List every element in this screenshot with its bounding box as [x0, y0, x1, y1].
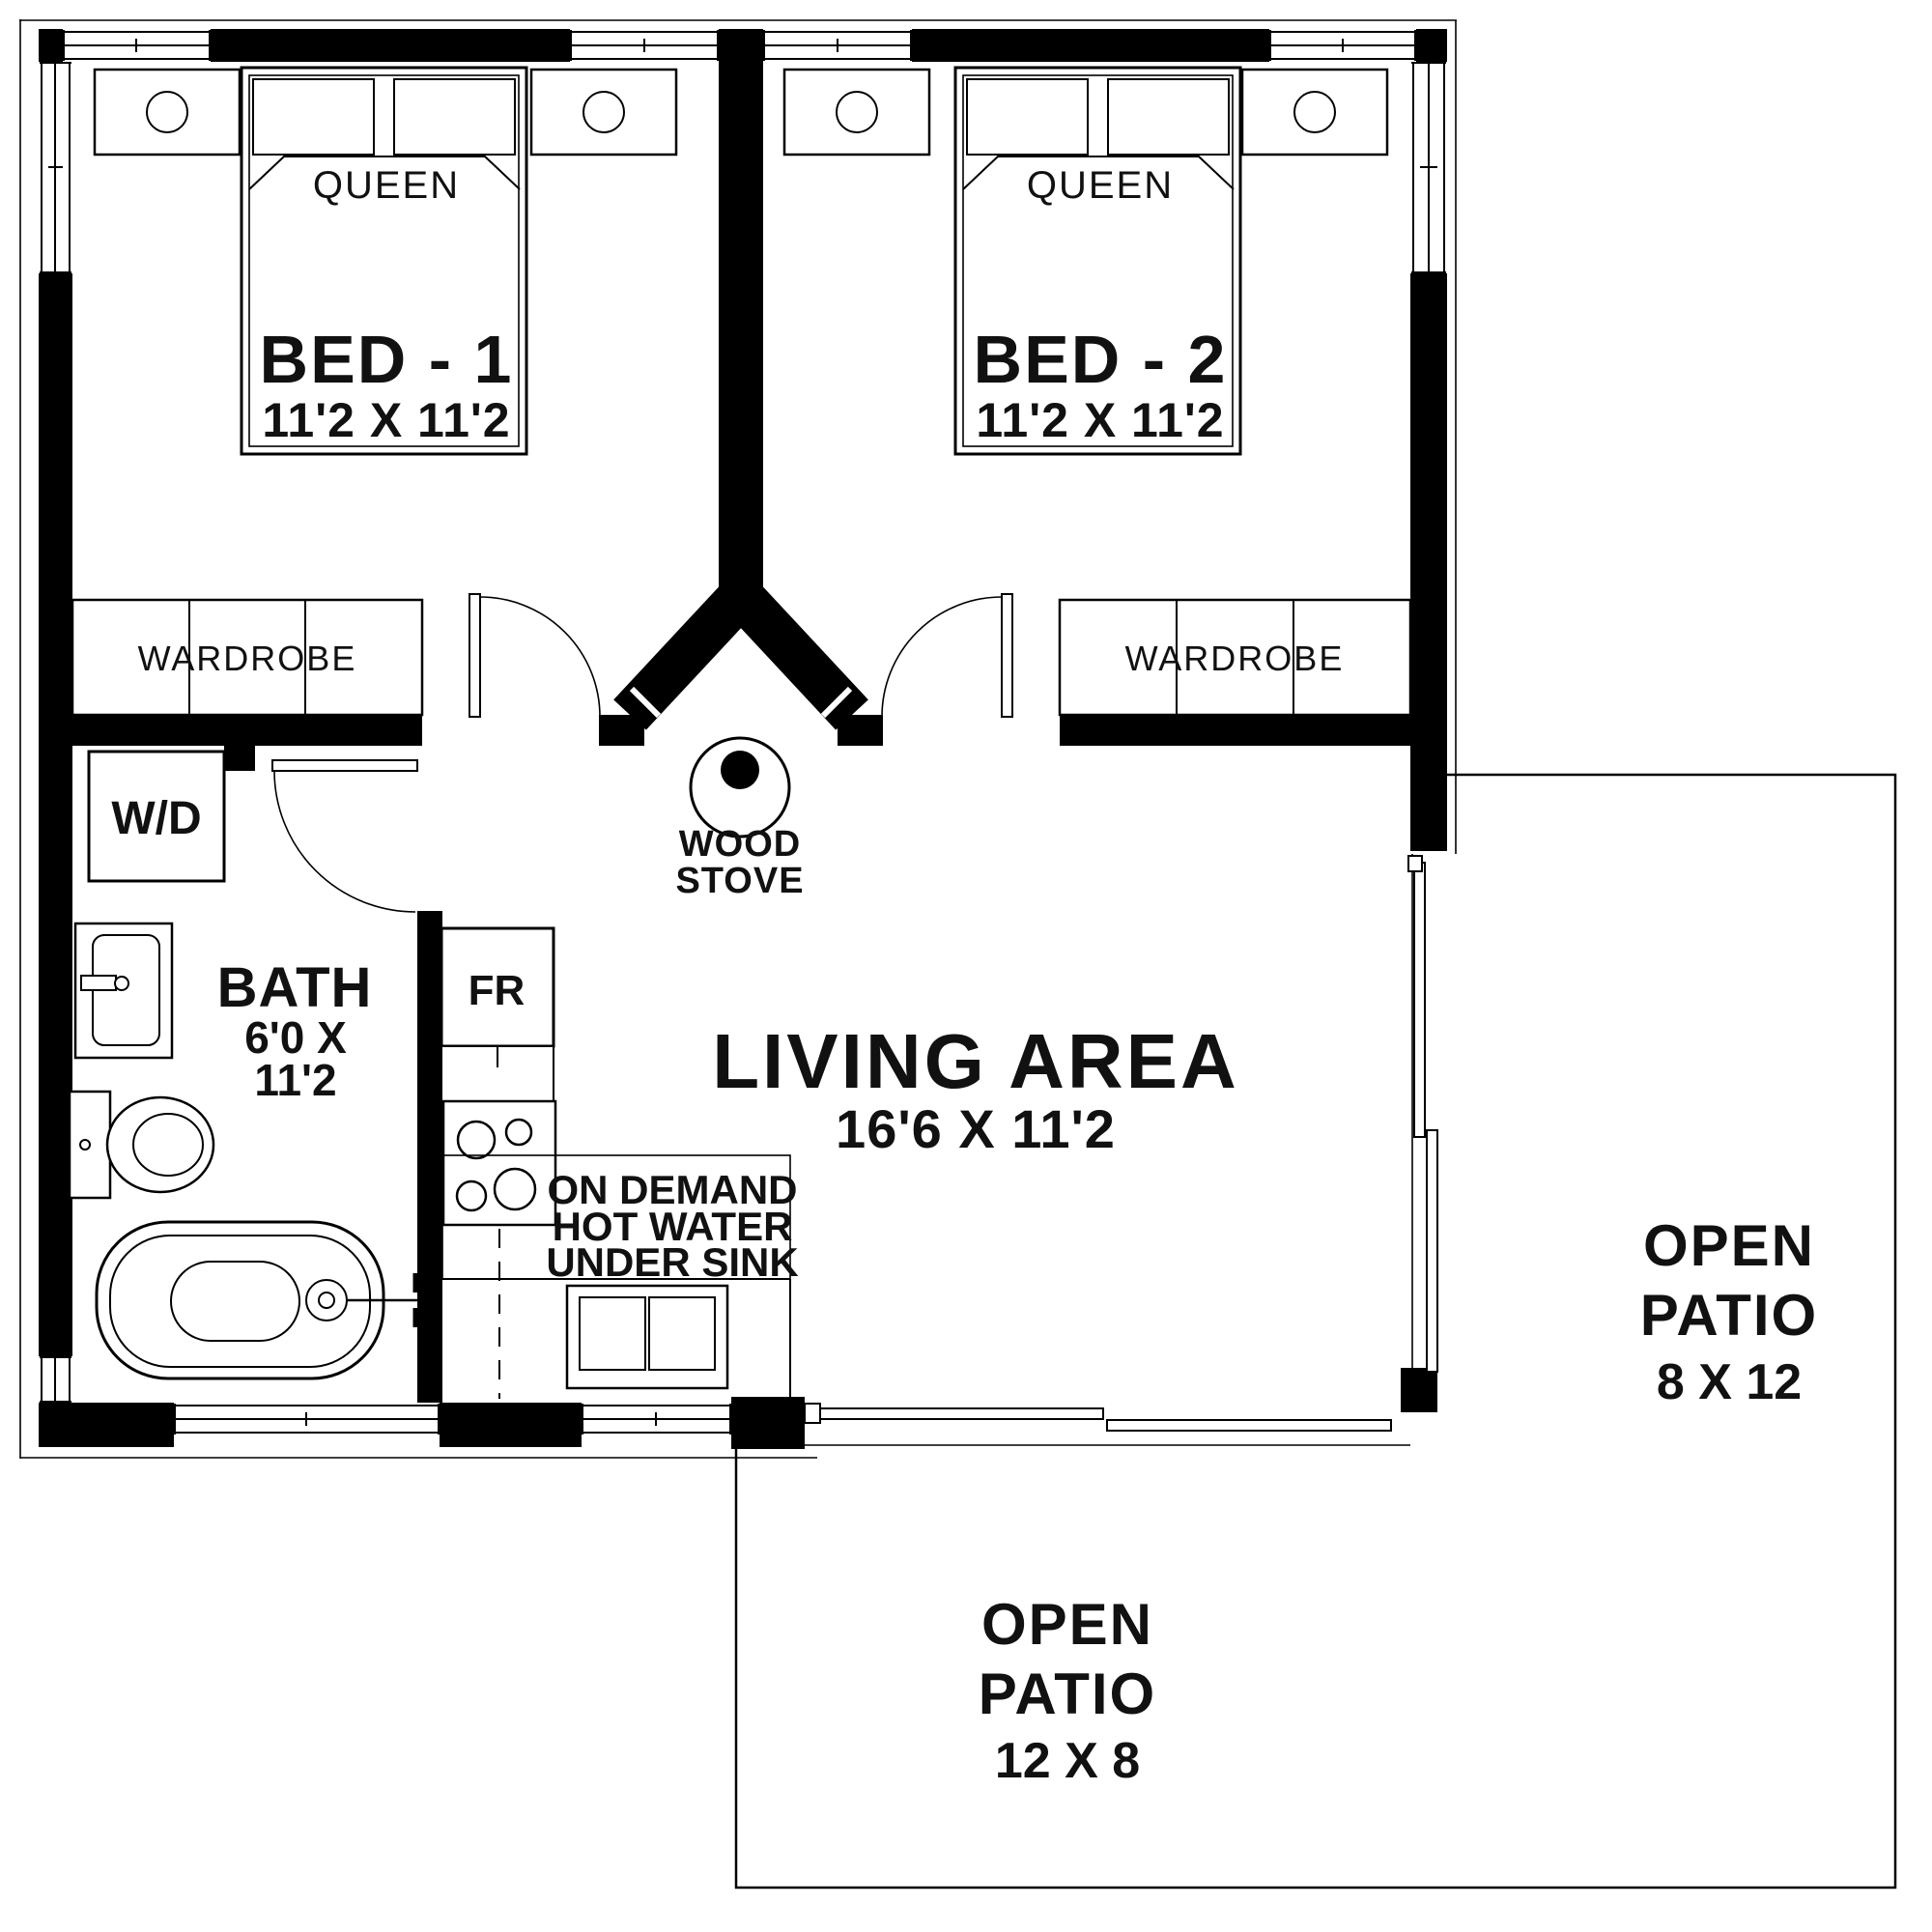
sliding-door-right-panel-2 [1427, 1130, 1437, 1372]
patio-right-dims: 8 X 12 [1657, 1354, 1802, 1410]
bed2-pillow-right [1108, 79, 1229, 155]
wood-stove-icon [691, 738, 789, 837]
bed2-lamp-left-icon [837, 92, 877, 132]
wood-stove-label-2: STOVE [675, 861, 804, 901]
bath-door [272, 760, 417, 912]
bed2-door [882, 594, 1012, 717]
living-room-label: LIVING AREA [712, 1018, 1239, 1104]
bed2-pillow-left [967, 79, 1088, 155]
window-top-2 [570, 29, 719, 62]
kitchen-note-line3: UNDER SINK [546, 1239, 798, 1285]
bed2-queen-label: QUEEN [1027, 164, 1174, 207]
floor-plan-canvas: QUEEN BED - 1 11'2 X 11'2 QUEEN BED - 2 … [0, 0, 1932, 1932]
bed1-lamp-left-icon [147, 92, 187, 132]
bed1-pillow-right [394, 79, 515, 155]
bed2-room-label: BED - 2 [974, 322, 1228, 397]
window-left-top [39, 62, 72, 273]
bed1-room-label: BED - 1 [260, 322, 514, 397]
wardrobe1-label: WARDROBE [138, 639, 357, 678]
patio-bottom-label-1: OPEN [981, 1592, 1153, 1657]
window-left-bottom [39, 1356, 72, 1403]
bed2-dims-label: 11'2 X 11'2 [976, 393, 1224, 447]
patio-bottom-dims: 12 X 8 [995, 1733, 1140, 1789]
kitchen-sink-icon [567, 1286, 727, 1388]
window-bottom-1 [174, 1403, 440, 1447]
bed2-lamp-right-icon [1294, 92, 1335, 132]
toilet-icon [70, 1092, 213, 1198]
fridge-label: FR [469, 967, 526, 1014]
bath-room-label: BATH [217, 956, 373, 1019]
bed1-dims-label: 11'2 X 11'2 [262, 393, 510, 447]
bed1-pillow-left [253, 79, 374, 155]
bed1-door [469, 594, 600, 717]
window-top-4 [1269, 29, 1416, 62]
window-right-top [1410, 62, 1447, 273]
bathtub-icon [97, 1222, 422, 1378]
sliding-door-right-panel-1 [1414, 863, 1425, 1137]
cooktop-icon [443, 1101, 555, 1225]
floor-plan-page: QUEEN BED - 1 11'2 X 11'2 QUEEN BED - 2 … [0, 0, 1932, 1932]
bath-dims-label-2: 11'2 [254, 1055, 336, 1105]
bed1-lamp-right-icon [583, 92, 624, 132]
living-dims-label: 16'6 X 11'2 [836, 1098, 1116, 1159]
wood-stove-label-1: WOOD [679, 824, 801, 865]
washer-dryer-label: W/D [111, 793, 201, 844]
window-top-3 [763, 29, 912, 62]
patio-right-label-2: PATIO [1640, 1283, 1818, 1348]
patio-bottom-label-2: PATIO [979, 1662, 1156, 1726]
patio-right-label-1: OPEN [1643, 1213, 1815, 1278]
bed1-queen-label: QUEEN [313, 164, 460, 207]
sliding-door-bottom-panel-1 [819, 1408, 1103, 1419]
sliding-door-bottom-panel-2 [1107, 1420, 1391, 1431]
wardrobe2-label: WARDROBE [1125, 639, 1345, 678]
window-bottom-2 [582, 1403, 731, 1447]
window-top-1 [63, 29, 211, 62]
bath-sink-icon [75, 923, 172, 1058]
